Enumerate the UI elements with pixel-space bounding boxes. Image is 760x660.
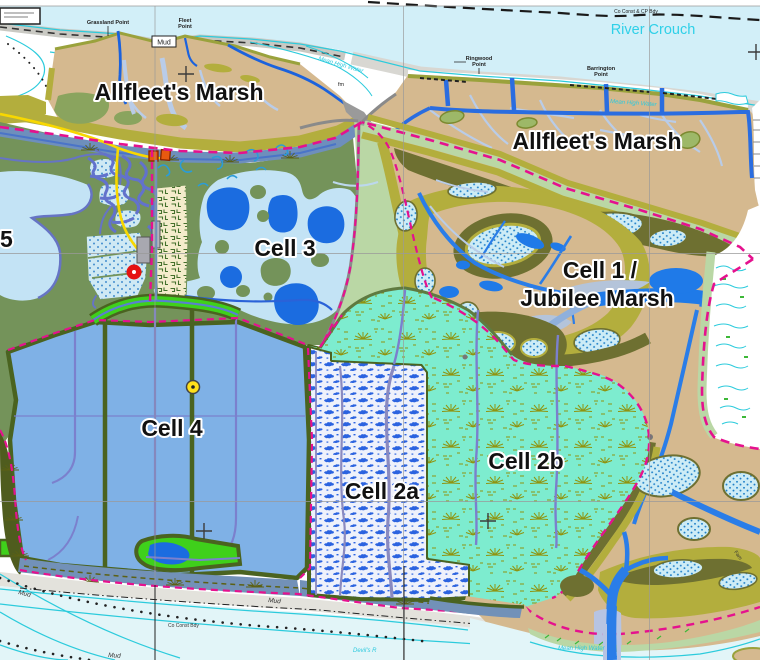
svg-text:River Crouch: River Crouch (611, 22, 696, 38)
svg-text:Allfleet's Marsh: Allfleet's Marsh (94, 79, 263, 105)
svg-text:Co Const Bdy: Co Const Bdy (168, 623, 199, 629)
svg-text:Devil's R: Devil's R (353, 648, 377, 654)
svg-text:Grassland Point: Grassland Point (87, 20, 129, 26)
svg-text:Mud: Mud (157, 40, 171, 47)
svg-text:Cell 4: Cell 4 (141, 415, 203, 441)
svg-text:5: 5 (0, 226, 13, 252)
svg-text:Co Const & CP Bdy: Co Const & CP Bdy (614, 9, 658, 15)
svg-text:fm: fm (338, 82, 345, 88)
svg-text:Point: Point (178, 24, 192, 30)
svg-text:Mud: Mud (108, 652, 121, 660)
svg-text:Cell 2a: Cell 2a (345, 478, 419, 504)
svg-text:Point: Point (594, 72, 608, 78)
svg-text:Mud: Mud (268, 597, 282, 605)
svg-text:Cell 2b: Cell 2b (488, 448, 563, 474)
svg-text:Cell 3: Cell 3 (254, 235, 315, 261)
svg-text:Mean High Water: Mean High Water (558, 646, 606, 652)
svg-text:Jubilee Marsh: Jubilee Marsh (520, 285, 673, 311)
svg-text:Point: Point (472, 62, 486, 68)
svg-text:Allfleet's Marsh: Allfleet's Marsh (512, 128, 681, 154)
svg-text:Cell 1 /: Cell 1 / (563, 257, 638, 283)
